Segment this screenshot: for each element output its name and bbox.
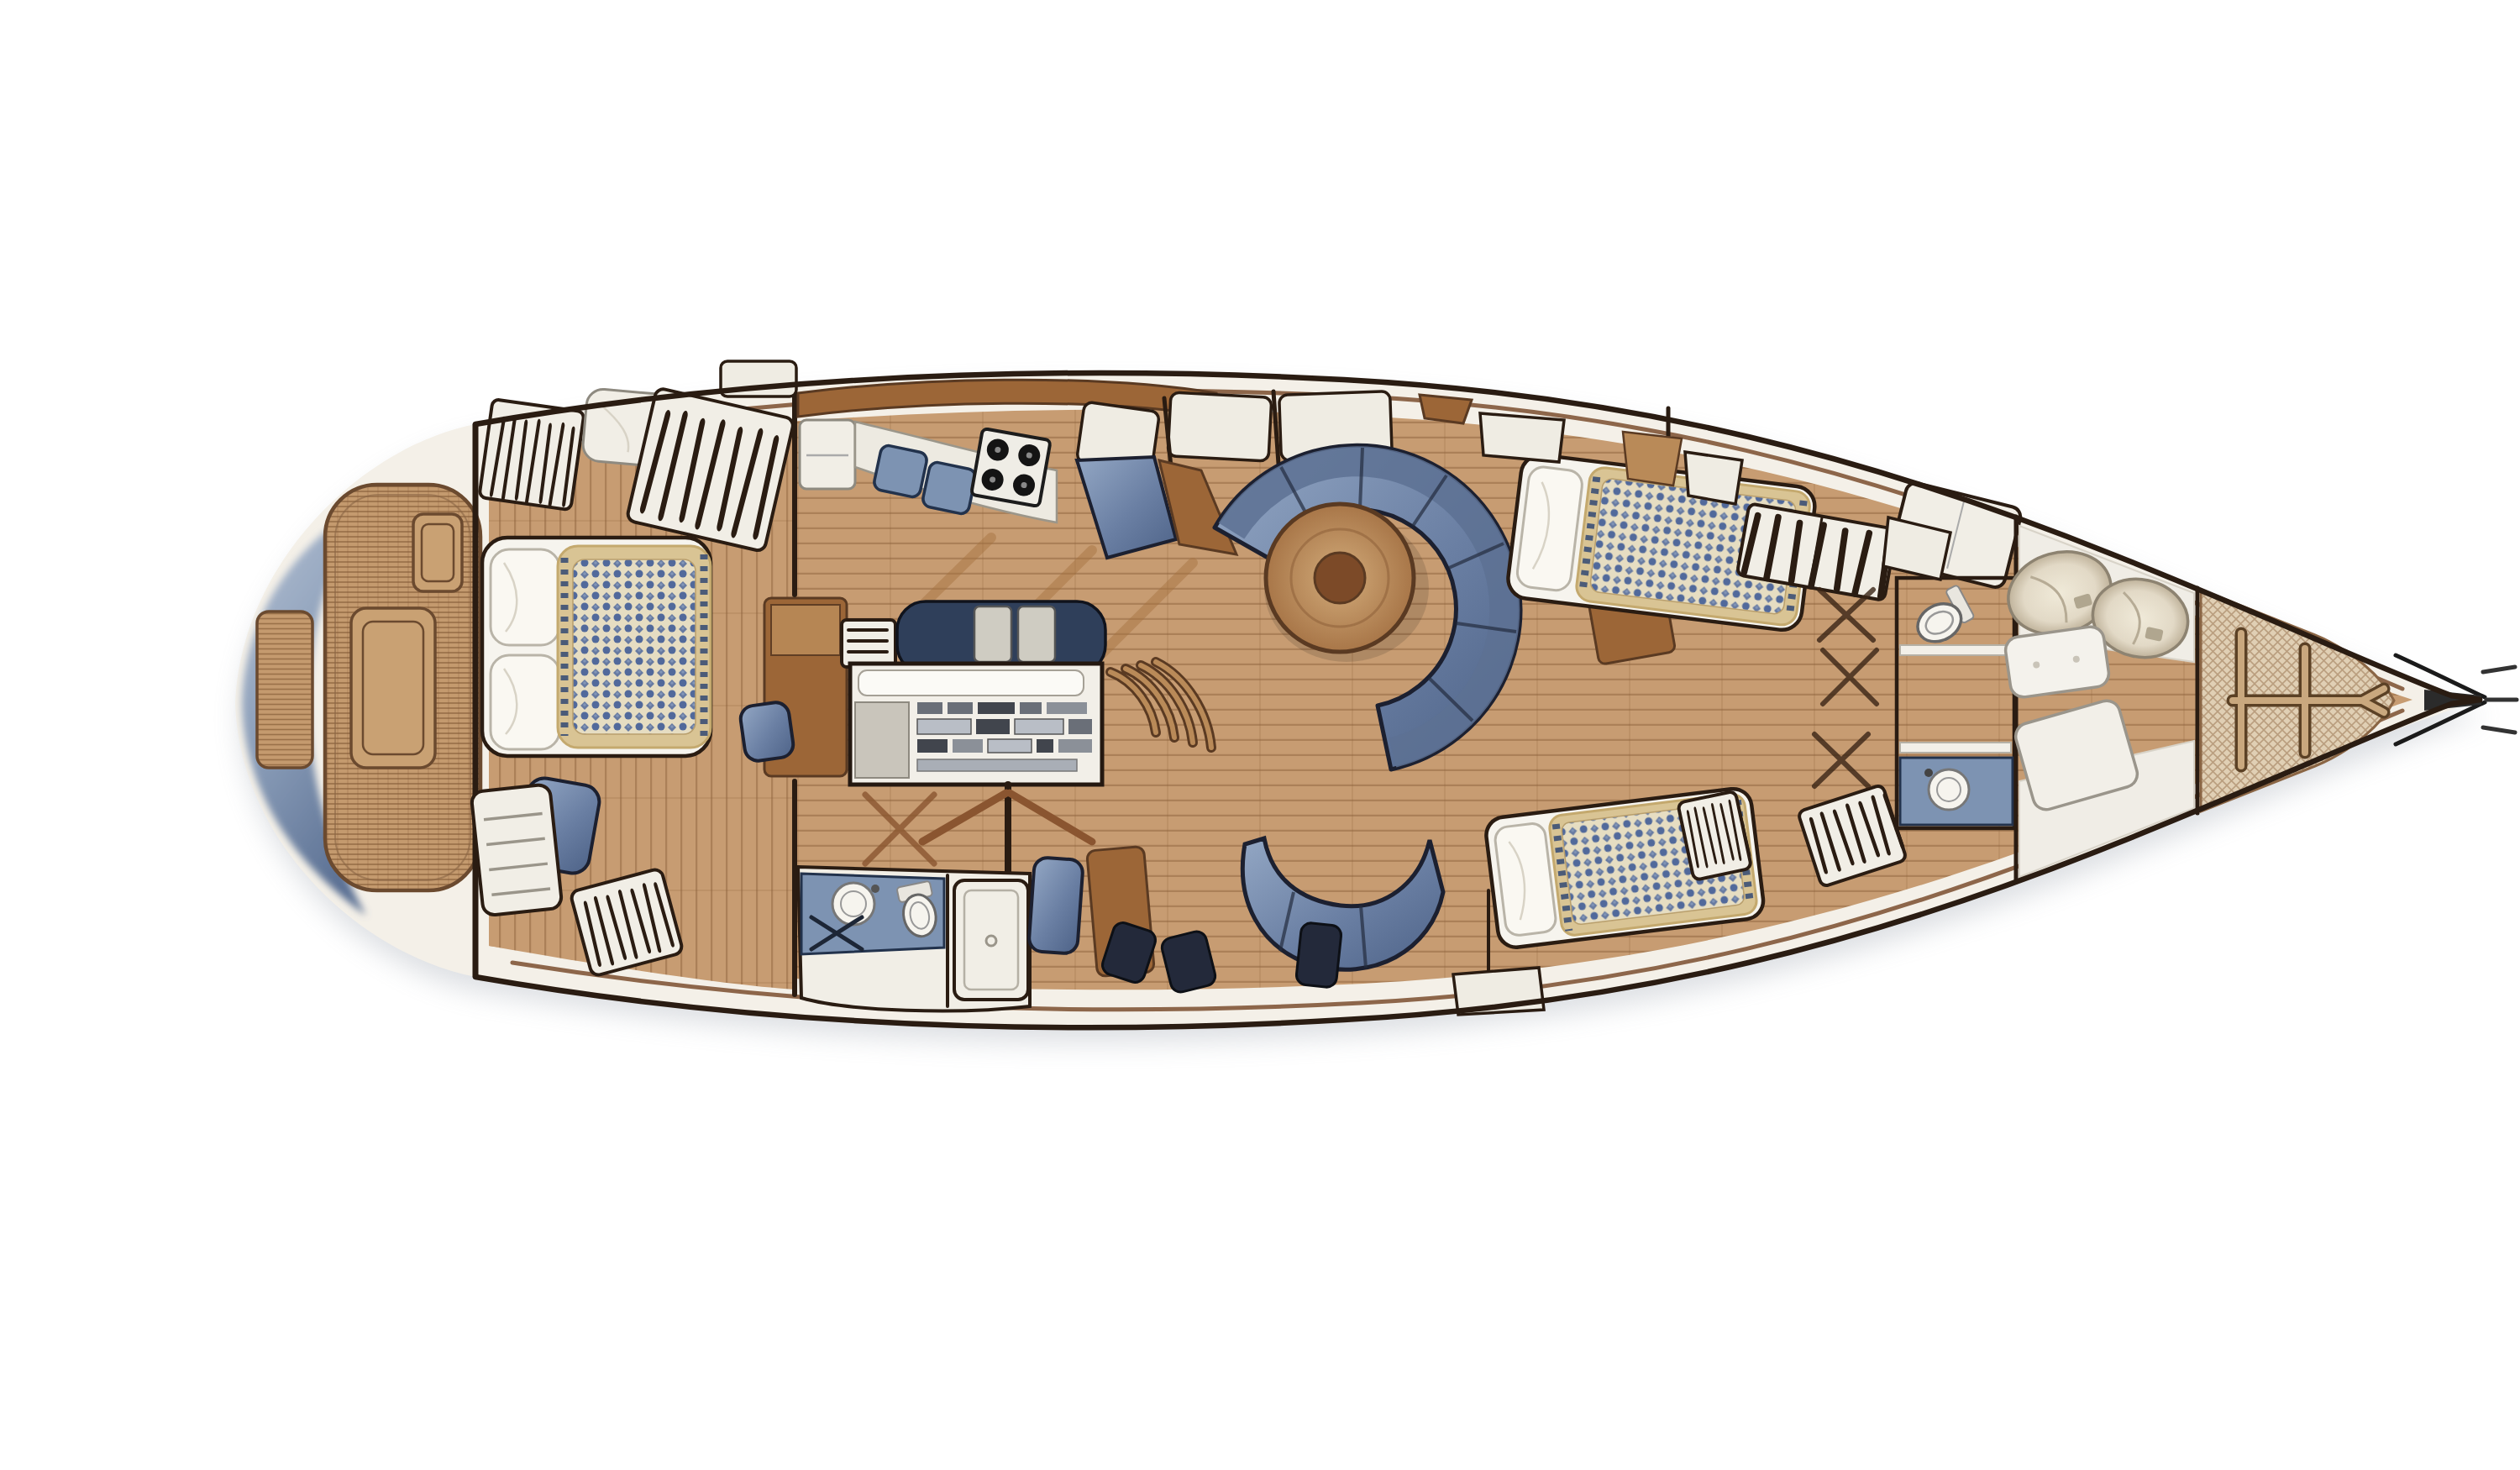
faucet (1924, 769, 1933, 777)
vent-louver (842, 620, 895, 667)
wood-gap (1623, 432, 1682, 486)
nav-seat-panel-2 (1018, 606, 1055, 662)
yacht-floor-plan-canvas (0, 0, 2520, 1470)
sink-lid-1 (873, 444, 928, 498)
desk-stool-blue (739, 701, 795, 762)
aft-head (798, 867, 1030, 1011)
chart-table-shelf (858, 670, 1084, 696)
bedspread (558, 546, 711, 748)
nav-seat-panel-1 (974, 606, 1011, 662)
forepeak-berth-cushion (2004, 625, 2111, 699)
forward-head-teak-floor (1900, 648, 2011, 753)
salon-table (1266, 504, 1414, 652)
white-deck-locker-1 (1480, 413, 1564, 462)
teak-swim-step (257, 612, 312, 768)
aft-deck (325, 485, 480, 890)
yacht-floor-plan-illustration (0, 0, 2520, 1470)
louver-locker (471, 784, 563, 916)
deck-hatch-large (351, 608, 435, 768)
hanging-locker-aft-2 (627, 387, 795, 552)
forestay-lines (2483, 667, 2517, 732)
deck-hatch-small (413, 514, 462, 591)
sink-lid-2 (921, 461, 977, 515)
stove (971, 428, 1051, 507)
alcove-seat-blue (1028, 857, 1084, 954)
nav-side-cabinet (855, 702, 909, 778)
threshold-2 (1900, 743, 2011, 753)
wood-block-1 (1420, 395, 1472, 423)
white-deck-locker-2 (1685, 452, 1742, 504)
threshold-1 (1900, 645, 2011, 655)
owners-berth (482, 538, 711, 756)
galley-fridge (800, 420, 855, 489)
faucet (871, 885, 879, 893)
hull-locker-white-2 (1168, 392, 1272, 461)
